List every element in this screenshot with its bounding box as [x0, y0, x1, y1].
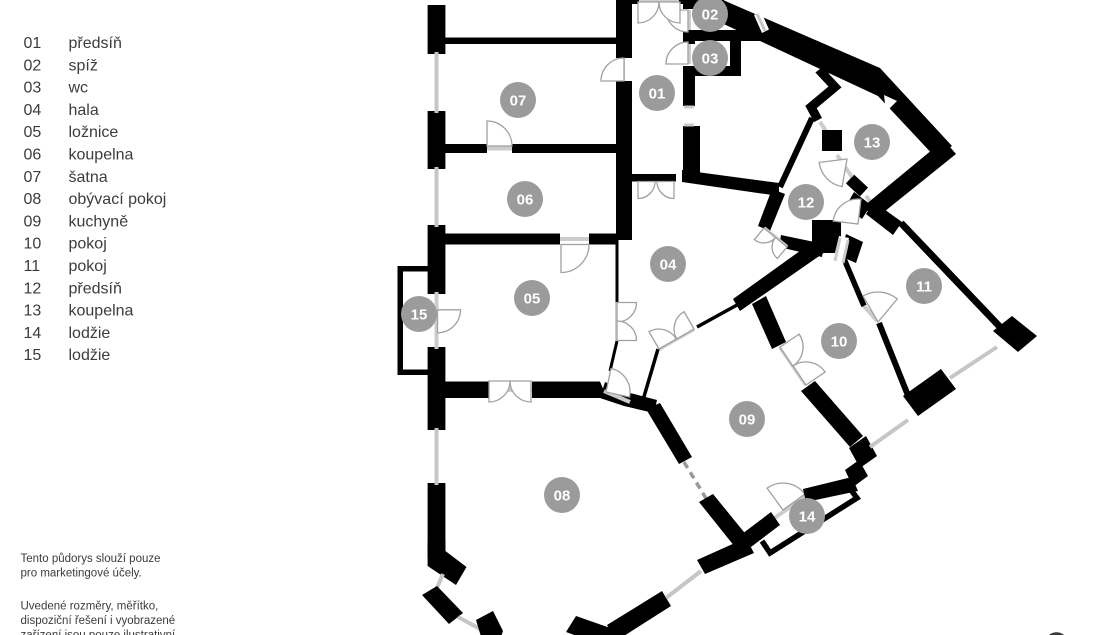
svg-text:pokoj: pokoj: [69, 258, 107, 275]
svg-text:14: 14: [799, 509, 816, 526]
svg-text:04: 04: [24, 102, 42, 119]
svg-text:ložnice: ložnice: [69, 124, 119, 141]
svg-text:pro marketingové účely.: pro marketingové účely.: [21, 568, 142, 580]
svg-text:15: 15: [411, 307, 428, 324]
svg-text:11: 11: [24, 258, 41, 275]
svg-text:koupelna: koupelna: [69, 303, 134, 320]
svg-text:07: 07: [24, 169, 42, 186]
svg-text:15: 15: [24, 347, 42, 364]
svg-text:05: 05: [524, 291, 541, 308]
svg-text:hala: hala: [69, 102, 99, 119]
svg-text:dispoziční řešení i vyobrazené: dispoziční řešení i vyobrazené: [21, 615, 176, 627]
svg-text:13: 13: [864, 135, 881, 152]
svg-text:12: 12: [24, 280, 42, 297]
svg-text:lodžie: lodžie: [69, 325, 111, 342]
svg-text:pokoj: pokoj: [69, 236, 107, 253]
svg-text:01: 01: [649, 86, 666, 103]
svg-text:03: 03: [24, 80, 42, 97]
svg-text:06: 06: [24, 147, 42, 164]
svg-text:01: 01: [24, 35, 42, 52]
svg-text:wc: wc: [68, 80, 89, 97]
svg-text:zařízení jsou pouze ilustrativ: zařízení jsou pouze ilustrativní.: [21, 630, 179, 635]
svg-text:13: 13: [24, 303, 42, 320]
svg-text:09: 09: [739, 412, 756, 429]
svg-text:lodžie: lodžie: [69, 347, 111, 364]
svg-text:05: 05: [24, 124, 42, 141]
svg-text:předsíň: předsíň: [69, 280, 122, 297]
svg-text:spíž: spíž: [69, 57, 98, 74]
svg-text:Tento půdorys slouží pouze: Tento půdorys slouží pouze: [21, 553, 161, 565]
svg-text:08: 08: [24, 191, 42, 208]
svg-text:02: 02: [24, 57, 42, 74]
svg-text:11: 11: [916, 279, 932, 296]
svg-text:09: 09: [24, 213, 42, 230]
svg-text:Uvedené rozměry, měřítko,: Uvedené rozměry, měřítko,: [21, 601, 159, 613]
svg-text:10: 10: [831, 334, 848, 351]
svg-text:12: 12: [798, 195, 815, 212]
svg-text:04: 04: [660, 257, 677, 274]
svg-text:03: 03: [702, 51, 719, 68]
svg-text:10: 10: [24, 236, 42, 253]
svg-text:07: 07: [510, 93, 527, 110]
svg-text:14: 14: [24, 325, 42, 342]
svg-text:předsíň: předsíň: [69, 35, 122, 52]
svg-text:šatna: šatna: [69, 169, 108, 186]
svg-text:kuchyně: kuchyně: [69, 213, 129, 230]
svg-text:06: 06: [517, 192, 534, 209]
svg-text:obývací pokoj: obývací pokoj: [69, 191, 167, 208]
svg-text:koupelna: koupelna: [69, 147, 134, 164]
svg-text:08: 08: [554, 488, 571, 505]
svg-text:02: 02: [702, 7, 719, 24]
